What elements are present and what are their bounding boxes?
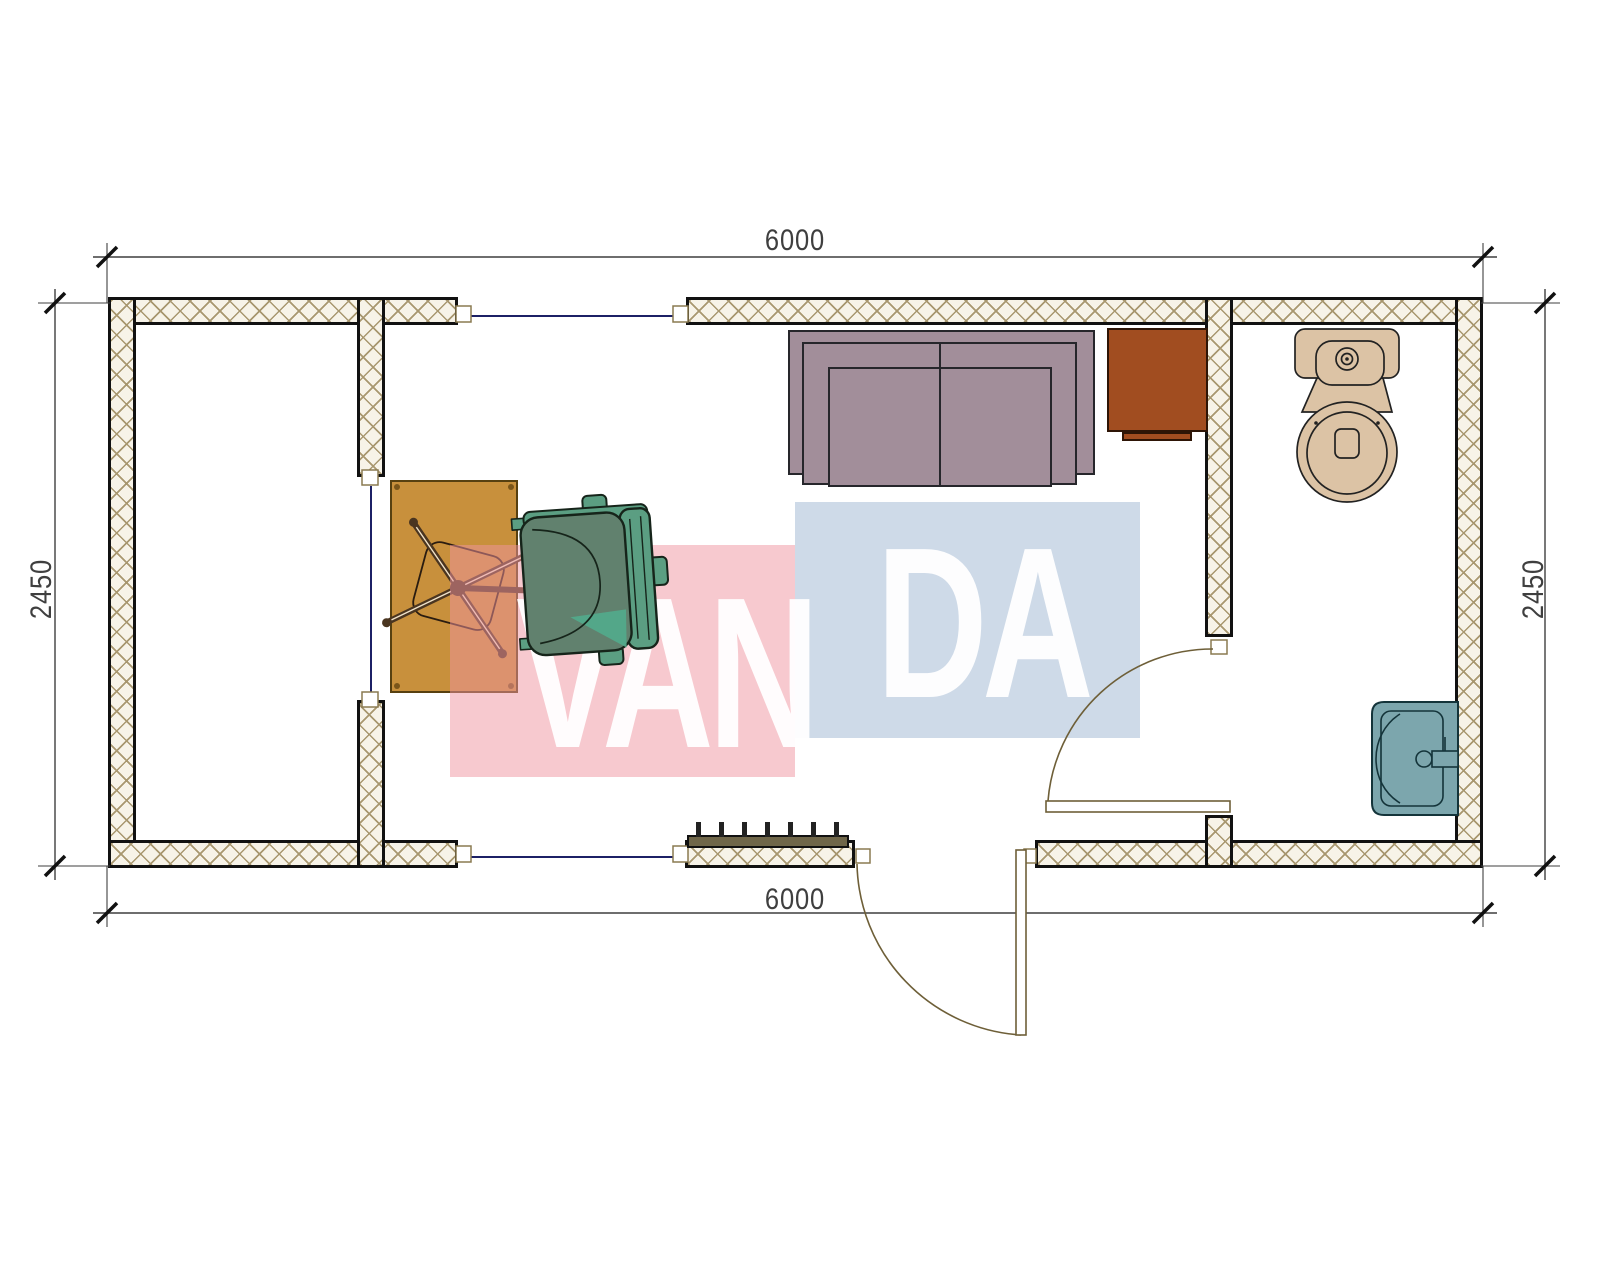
plan-overlay-layer [0, 0, 1600, 1280]
entrance-door-leaf [1016, 850, 1026, 1035]
floor-plan-canvas: VAN DA 6000 6000 2450 [0, 0, 1600, 1280]
bathroom-door [1046, 649, 1230, 812]
bathroom-door-leaf [1046, 801, 1230, 812]
office-chair [510, 491, 673, 671]
entrance-door [857, 850, 1026, 1035]
